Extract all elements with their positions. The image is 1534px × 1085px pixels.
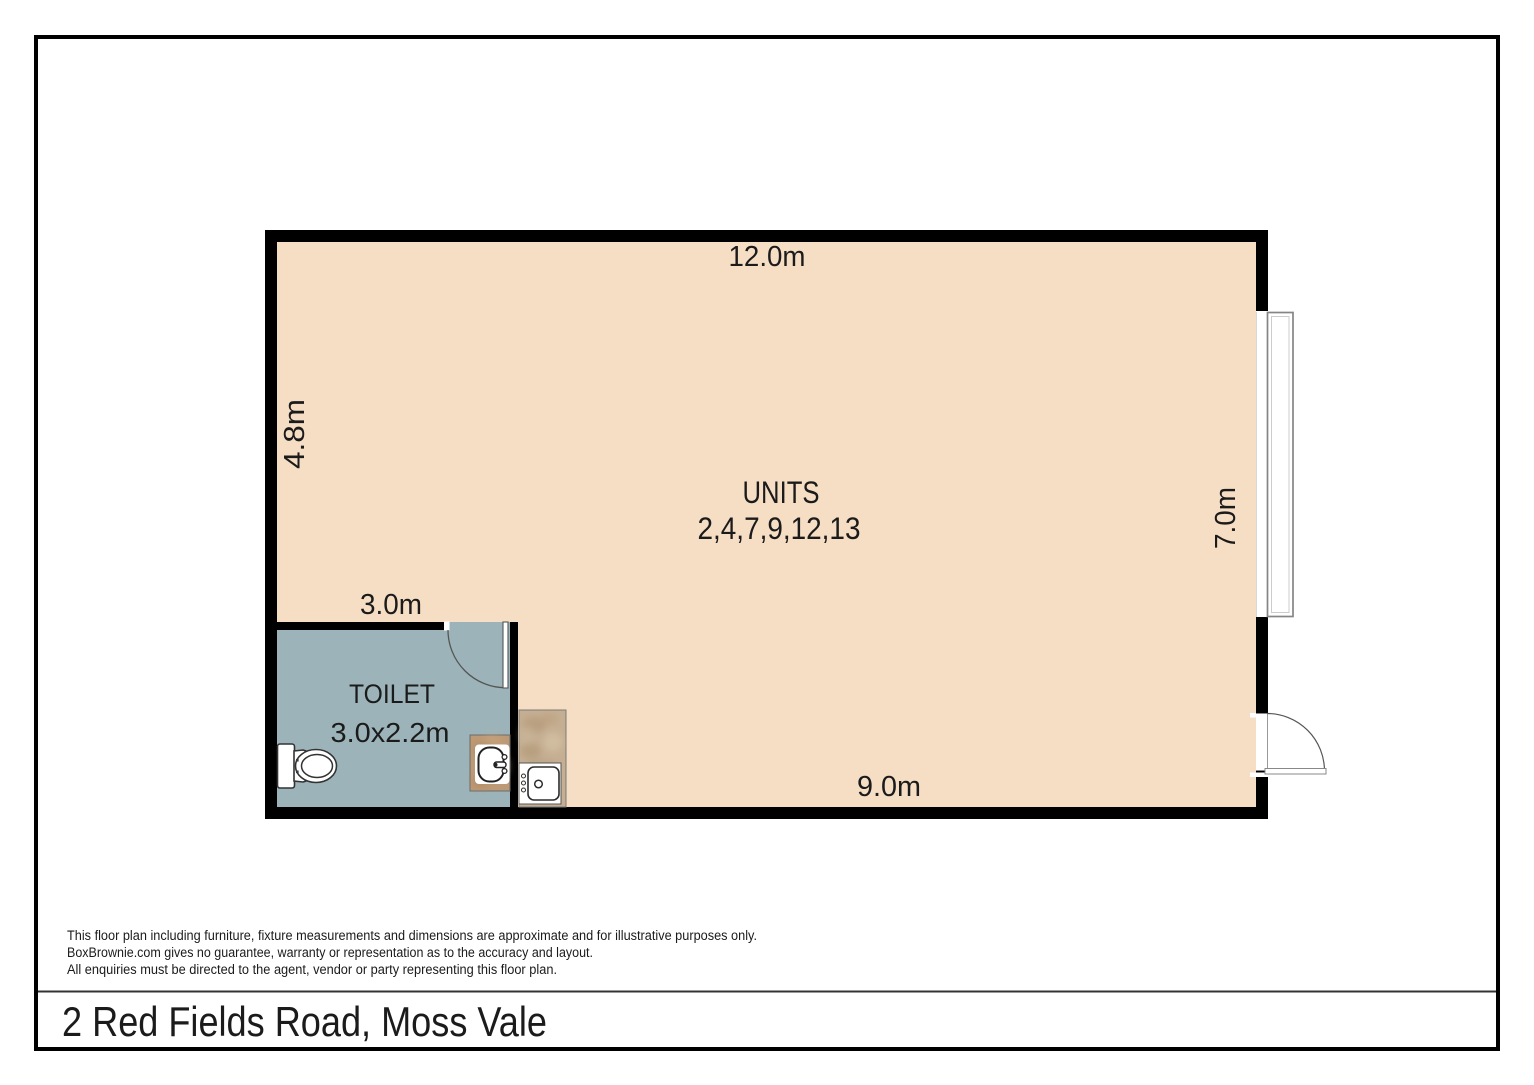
svg-text:4.8m: 4.8m (279, 399, 311, 469)
svg-text:7.0m: 7.0m (1210, 487, 1242, 549)
svg-text:2 Red Fields Road, Moss Vale: 2 Red Fields Road, Moss Vale (62, 998, 547, 1045)
svg-text:All enquiries must be directed: All enquiries must be directed to the ag… (67, 962, 557, 977)
svg-text:BoxBrownie.com gives no guaran: BoxBrownie.com gives no guarantee, warra… (67, 945, 593, 960)
svg-text:9.0m: 9.0m (857, 771, 921, 803)
svg-text:UNITS: UNITS (743, 474, 820, 510)
svg-text:3.0m: 3.0m (360, 589, 422, 621)
svg-text:12.0m: 12.0m (729, 241, 806, 273)
svg-text:This floor plan including furn: This floor plan including furniture, fix… (67, 928, 757, 943)
svg-text:2,4,7,9,12,13: 2,4,7,9,12,13 (698, 510, 861, 546)
svg-text:TOILET: TOILET (349, 679, 435, 709)
svg-text:3.0x2.2m: 3.0x2.2m (331, 717, 450, 748)
